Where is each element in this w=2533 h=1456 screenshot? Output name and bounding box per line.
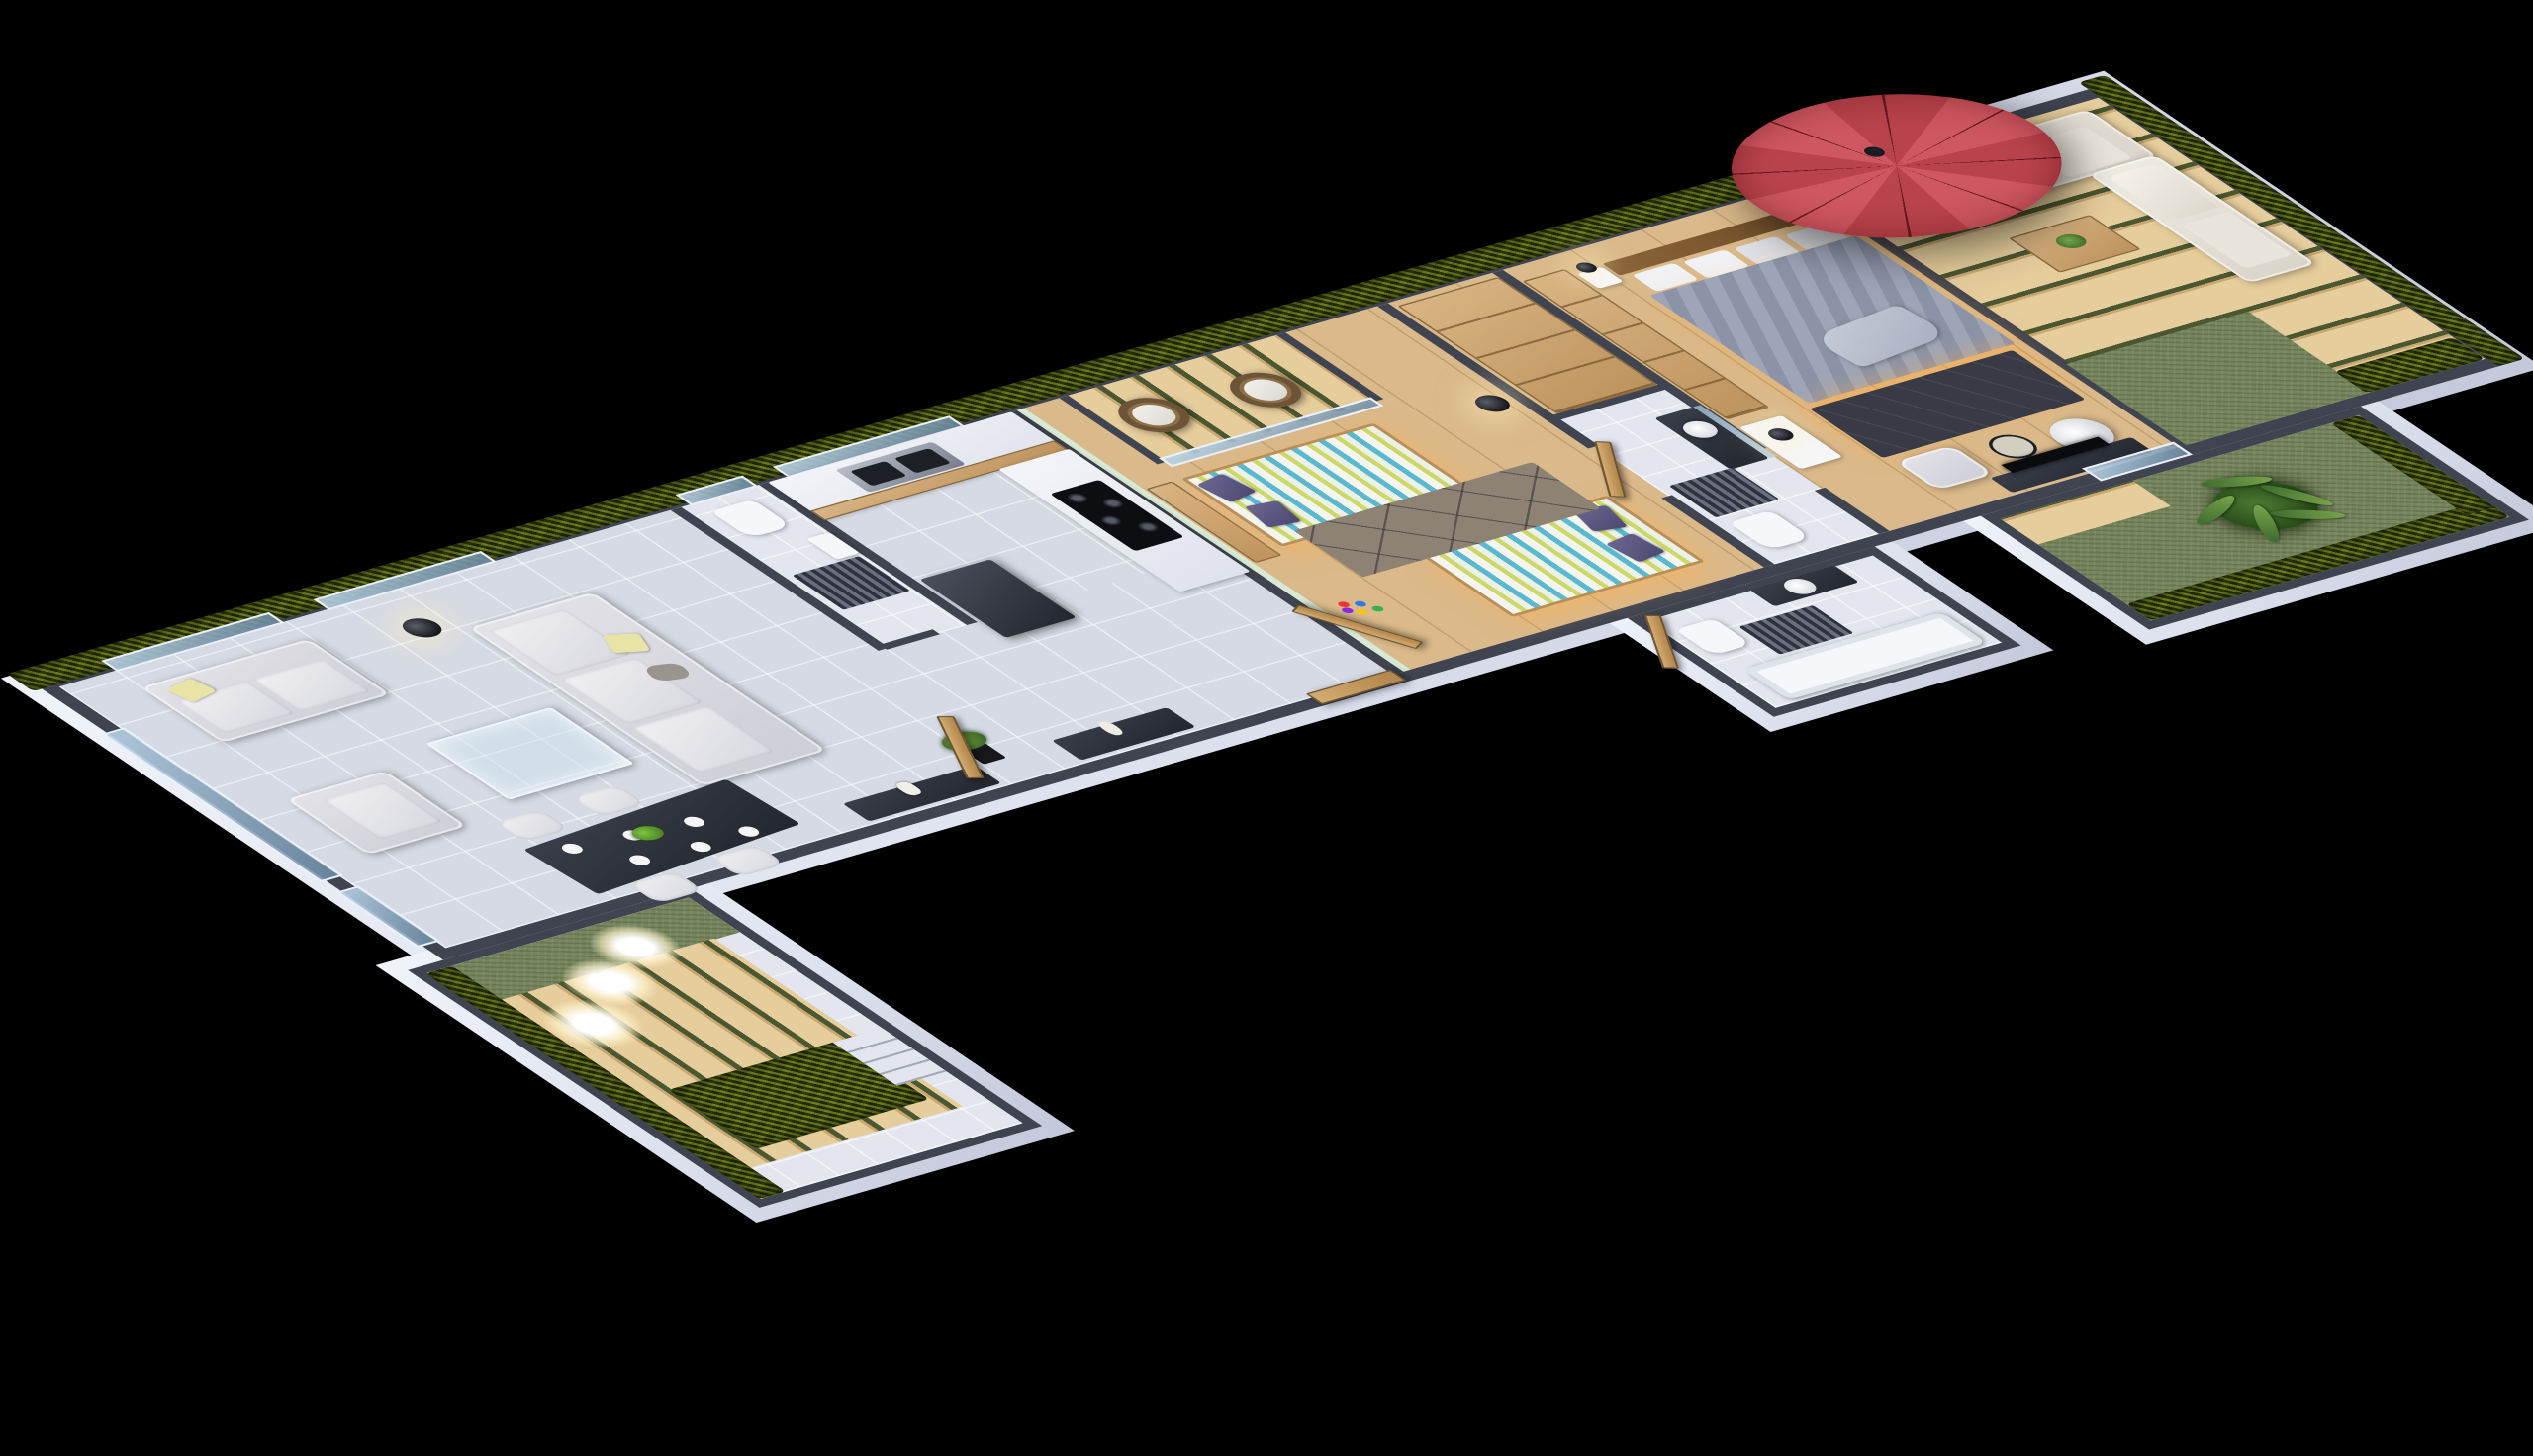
scene-background (0, 0, 2533, 1456)
floor-plan (0, 70, 2533, 1223)
